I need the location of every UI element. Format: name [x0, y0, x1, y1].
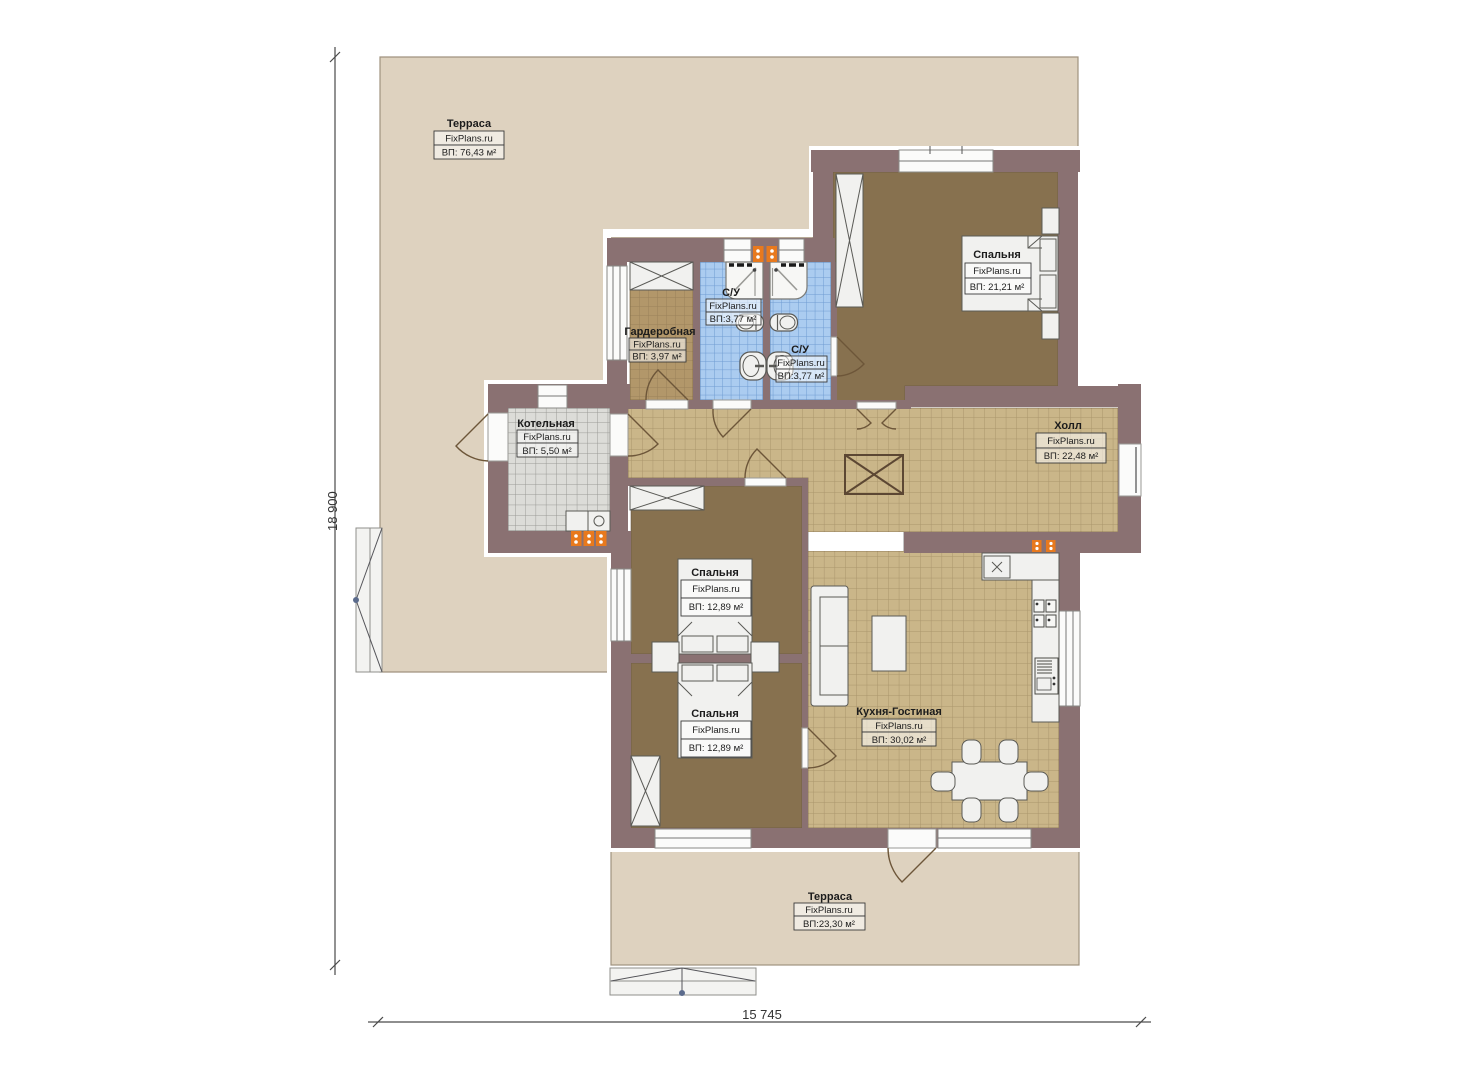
svg-text:Котельная: Котельная [517, 418, 575, 430]
svg-text:Терраса: Терраса [447, 118, 492, 130]
svg-text:Спальня: Спальня [691, 567, 739, 579]
svg-text:С/У: С/У [791, 344, 809, 356]
svg-text:С/У: С/У [722, 287, 740, 299]
svg-text:ВП: 12,89 м²: ВП: 12,89 м² [689, 602, 744, 613]
svg-text:FixPlans.ru: FixPlans.ru [633, 340, 681, 351]
svg-text:FixPlans.ru: FixPlans.ru [692, 725, 740, 736]
svg-text:Кухня-Гостиная: Кухня-Гостиная [856, 706, 942, 718]
svg-text:Терраса: Терраса [808, 891, 853, 903]
svg-text:ВП: 22,48 м²: ВП: 22,48 м² [1044, 451, 1099, 462]
svg-text:Холл: Холл [1054, 420, 1082, 432]
svg-text:18 900: 18 900 [325, 491, 340, 531]
svg-text:Гардеробная: Гардеробная [624, 326, 695, 338]
svg-text:Спальня: Спальня [691, 708, 739, 720]
svg-text:15 745: 15 745 [742, 1007, 782, 1022]
svg-text:FixPlans.ru: FixPlans.ru [973, 266, 1021, 277]
svg-text:FixPlans.ru: FixPlans.ru [709, 301, 757, 312]
svg-text:FixPlans.ru: FixPlans.ru [445, 134, 493, 145]
svg-text:ВП:23,30 м²: ВП:23,30 м² [803, 919, 855, 930]
svg-text:ВП:3,77 м²: ВП:3,77 м² [710, 314, 757, 325]
svg-text:Спальня: Спальня [973, 249, 1021, 261]
svg-text:ВП: 5,50 м²: ВП: 5,50 м² [522, 446, 571, 457]
svg-text:ВП: 12,89 м²: ВП: 12,89 м² [689, 743, 744, 754]
svg-text:ВП: 30,02 м²: ВП: 30,02 м² [872, 735, 927, 746]
svg-text:FixPlans.ru: FixPlans.ru [805, 905, 853, 916]
svg-text:FixPlans.ru: FixPlans.ru [692, 584, 740, 595]
svg-text:FixPlans.ru: FixPlans.ru [777, 358, 825, 369]
svg-text:ВП: 76,43 м²: ВП: 76,43 м² [442, 148, 497, 159]
svg-text:FixPlans.ru: FixPlans.ru [1047, 436, 1095, 447]
svg-text:FixPlans.ru: FixPlans.ru [875, 721, 923, 732]
svg-text:ВП:3,77 м²: ВП:3,77 м² [778, 371, 825, 382]
svg-text:ВП: 3,97 м²: ВП: 3,97 м² [632, 352, 681, 363]
svg-text:FixPlans.ru: FixPlans.ru [523, 432, 571, 443]
svg-text:ВП: 21,21 м²: ВП: 21,21 м² [970, 282, 1025, 293]
